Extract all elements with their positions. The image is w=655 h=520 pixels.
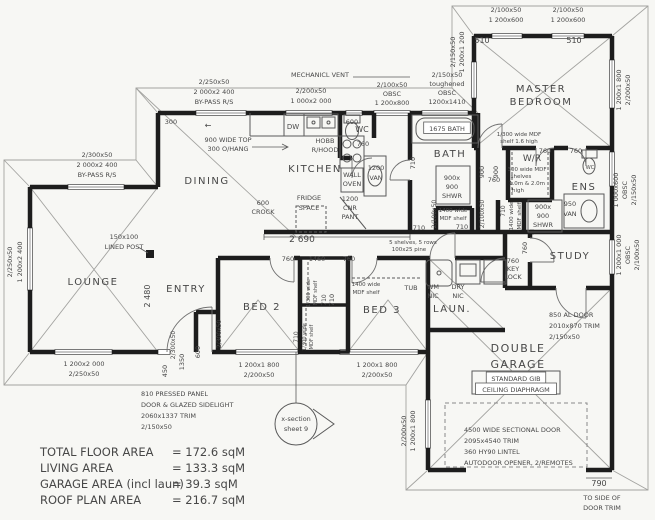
fix-wc-ens: WC [586,165,595,171]
win-dining-type: BY-PASS R/S [195,98,234,106]
area-value: = 39.3 sqM [172,477,238,491]
bath-door-arc [390,160,410,180]
win-garage-size: 2/200x50 [400,416,408,447]
door-entry-1: 810 PRESSED PANEL [141,390,208,398]
dim-760-bed3: 760 [343,255,355,263]
dim-2690: 2 690 [289,235,315,245]
note-wr-1: 300 wide MDF [507,167,546,173]
door-entry-4: 2/150x50 [141,423,172,431]
fix-crock-1: 600 [257,199,269,207]
note-shelves-2: 100x25 pine [392,247,427,253]
note-mech-vent: MECHANICL VENT [291,71,349,79]
area-summary: TOTAL FLOOR AREA= 172.6 sqMLIVING AREA= … [39,445,245,507]
win-bed3-glass: 1 200x1 800 [356,361,397,369]
labels-layer: 2/250x502 000x2 400BY-PASS R/S300900 WID… [6,6,641,512]
note-wr-shelf-1: 1/300 wide MDF [497,132,541,138]
area-label: ROOF PLAN AREA [40,493,141,507]
room-bed3: BED 3 [363,305,401,316]
dim-710-closet2: 710 [293,331,300,343]
win-bed2-glass: 1 200x1 800 [238,361,279,369]
door-al-3: 2/150x50 [549,333,580,341]
room-garage-1: DOUBLE [491,342,546,355]
win-master-n1-size: 2/100x50 [491,6,522,14]
win-master-w-glass: 1 200x1 200 [458,31,466,72]
door-al-2: 2010x870 TRIM [549,322,600,330]
note-shelves-1: 5 shelves, 5 rows [389,240,437,246]
room-study: STUDY [550,251,591,262]
note-gib-2: CEILING DIAPHRAGM [482,386,549,394]
fix-van950-2: VAN [563,210,576,218]
fix-pantry-3: PANT [342,213,359,221]
room-wr: W/R [523,154,541,164]
win-kitchen-size: 2/200x50 [296,87,327,95]
note-post-2: LINED POST [105,243,144,251]
dim-760-bed2: 760 [282,255,294,263]
fix-wm-2: NIC [427,292,439,300]
win-lounge-left-size: 2/250x50 [6,247,14,278]
fix-fridge-2: SPACE [299,204,320,212]
dim-450: 450 [161,365,169,377]
note-closet1-2: MDF shelf [313,280,319,305]
win-lounge-s-size: 2/250x50 [69,370,100,378]
fix-shwr-bath-3: SHWR [442,192,462,200]
win-lounge-left-glass: 1 200x2 400 [16,241,24,282]
fix-pantry-2: CNR [343,204,357,212]
dim-710-linen: 710 [456,223,468,231]
note-wr-shelf-2: shelf 1.6 high [500,139,538,145]
win-master-n2-glass: 1 200x600 [551,16,586,24]
win-wc-glass: 1 200x800 [375,99,410,107]
win-ens-size: 2/150x50 [630,175,638,206]
room-ens: ENS [572,182,597,193]
door-sectional-1: 4500 WIDE SECTIONAL DOOR [464,426,561,434]
fix-van1200-2: VAN [369,174,382,182]
win-ens-obsc: OBSC [621,180,629,199]
fix-shwr-bath-1: 900x [444,174,460,182]
win-wc-size: 2/100x50 [377,81,408,89]
note-bench-top-2: 300 O/HANG [207,145,248,153]
note-wr-4: high [512,188,525,194]
door-key-1: 760 [507,257,519,265]
note-wr-2: shelves [511,174,532,180]
area-label: GARAGE AREA (incl laun) [40,477,184,491]
area-label: LIVING AREA [40,461,113,475]
sectional-door-zone [445,403,587,467]
note-trim-1: TO SIDE OF [582,494,620,502]
fix-shwr-ens-1: 900x [535,203,551,211]
fix-shwr-bath-2: 900 [446,183,458,191]
floor-plan-drawing: 2/250x502 000x2 400BY-PASS R/S300900 WID… [0,0,655,520]
room-garage-2: GARAGE [490,358,545,371]
note-closet2-2: MDF shelf [309,324,315,349]
slider-arrow: ← [205,121,212,130]
fix-linen-bath-1: 1400 wide [439,208,468,214]
dim-2690-line [264,234,410,240]
win-master-e-glass: 1 200x1 800 [615,69,623,110]
area-value: = 216.7 sqM [172,493,245,507]
dim-710-closet1: 710 [321,294,328,306]
area-value: = 133.3 sqM [172,461,245,475]
dim-760-wr: 760 [539,147,551,155]
bench-arrow [252,144,288,150]
note-wr-3: 1.0m & 2.0m [509,181,545,187]
note-closet1-1: 1/300 wide [306,279,312,307]
dim-710-bath: 710 [409,157,417,169]
xsection-2: sheet 9 [284,425,308,433]
dim-600-entry: 600 [194,346,202,358]
door-sectional-3: 360 HY90 LINTEL [464,448,520,456]
dim-710-linen2: 710 [500,205,507,217]
floor-plan-page: 2/250x502 000x2 400BY-PASS R/S300900 WID… [0,0,655,520]
xsection-1: x-section [281,415,311,423]
dim-900-hall: 900 [478,166,486,178]
room-master-2: BEDROOM [510,97,573,108]
dim-bed2-wall: 2/300x50 [216,320,223,349]
dim-790: 790 [591,479,606,488]
win-bath-tough: toughened [429,80,464,88]
fix-wm-1: WM [427,283,439,291]
door-al-1: 850 AL DOOR [549,311,594,319]
keylock-door-arc [481,258,505,282]
fix-dry-1: DRY [451,283,464,291]
dim-900-wr: 900 [492,166,500,178]
win-ens-glass: 1 000x600 [612,173,620,208]
dim-710-hall: 710 [413,224,425,232]
fix-shwr-ens-3: SHWR [533,221,553,229]
dim-lintel-a: 2/100x50 [431,200,438,229]
fix-linen-bath-2: MDF shelf [439,216,467,222]
ens-cistern [582,150,597,158]
door-sectional-2: 2095x4540 TRIM [464,437,519,445]
win-bath-glass: 1200x1410 [429,98,466,106]
door-key-3: LOCK [504,273,522,281]
fix-van950-1: 950 [564,200,576,208]
fix-tub: TUB [403,284,417,292]
room-bed2: BED 2 [243,302,281,313]
dim-1350: 1350 [178,354,186,371]
note-post-1: 150x100 [110,233,139,241]
fix-hob-2: R/HOOD [312,146,339,154]
win-master-n2-size: 2/100x50 [553,6,584,14]
door-key-2: KEY [507,265,519,273]
note-linen2-2: MDF shelf [517,201,523,229]
dim-760-study: 760 [521,242,529,254]
win-study-glass: 1 200x1 000 [615,234,623,275]
dim-1460: 1460 [309,255,326,263]
win-kitchen-glass: 1 000x2 000 [290,97,331,105]
room-bath: BATH [434,149,467,160]
win-lounge-top-size: 2/300x50 [82,151,113,159]
win-master-e-size: 2/200x50 [624,75,632,106]
room-lounge: LOUNGE [68,277,119,288]
win-wc-obsc: OBSC [383,90,402,98]
area-label: TOTAL FLOOR AREA [39,445,154,459]
win-dining-size: 2/250x50 [199,78,230,86]
bed3-door-arc [352,258,377,283]
win-garage-glass: 1 200x1 800 [409,410,417,451]
win-lounge-top-glass: 2 000x2 400 [76,161,117,169]
win-dining-glass: 2 000x2 400 [193,88,234,96]
win-lounge-top-type: BY-PASS R/S [78,171,117,179]
win-study-obsc: OBSC [624,245,632,264]
win-bed3-size: 2/200x50 [362,371,393,379]
fix-fridge-1: FRIDGE [297,194,321,202]
dim-2480: 2 480 [143,285,152,308]
area-value: = 172.6 sqM [172,445,245,459]
fix-hob-1: HOBB [316,137,335,145]
dryer [484,260,506,284]
fix-shwr-ens-2: 900 [537,212,549,220]
dim-lintel-b: 2/100x50 [479,200,486,229]
fix-crock-2: CROCK [252,208,276,216]
dim-710-bed3: 710 [328,294,336,306]
dim-300: 300 [165,118,177,126]
door-entry-2: DOOR & GLAZED SIDELIGHT [141,401,233,409]
fix-dw: DW [287,123,299,131]
fix-pantry-1: 1200 [342,195,359,203]
dim-510-a: 510 [474,36,489,45]
dim-760-wc: 760 [357,140,369,148]
win-master-w-size: 2/150x50 [449,37,457,68]
win-lounge-s-glass: 1 200x2 000 [63,360,104,368]
door-entry-3: 2060x1337 TRIM [141,412,196,420]
fix-dry-2: NIC [452,292,464,300]
fix-van1200-1: 1200 [368,164,385,172]
lined-post [146,250,154,258]
fix-wall-oven-2: OVEN [343,180,362,188]
fix-bath-label: 1675 BATH [429,125,465,133]
room-dining: DINING [184,176,229,187]
room-laun: LAUN. [433,304,471,315]
door-sectional-4: AUTODOOR OPENER, 2/REMOTES [464,459,573,467]
dim-760-ens: 760 [570,147,582,155]
win-bed2-size: 2/200x50 [244,371,275,379]
note-robe3-2: MDF shelf [352,290,380,296]
room-wc: WC [355,125,369,134]
note-linen2-1: 1400 wide [509,201,515,230]
note-robe3-1: 1400 wide [352,282,381,288]
note-gib-1: STANDARD GIB [491,375,540,383]
room-kitchen: KITCHEN [288,164,342,175]
note-trim-2: DOOR TRIM [583,504,621,512]
note-bench-top-1: 900 WIDE TOP [204,136,251,144]
dim-510-b: 510 [566,36,581,45]
win-study-size: 2/100x50 [633,240,641,271]
room-master-1: MASTER [516,84,566,95]
xsection-marker [275,403,317,445]
note-closet2-1: 1/300 wide [302,323,308,351]
room-entry: ENTRY [166,284,206,295]
fix-wall-oven-1: WALL [343,171,361,179]
dim-entry-wall: 2/300x50 [170,331,177,360]
win-master-n1-glass: 1 200x600 [489,16,524,24]
win-bath-obsc: OBSC [438,89,457,97]
